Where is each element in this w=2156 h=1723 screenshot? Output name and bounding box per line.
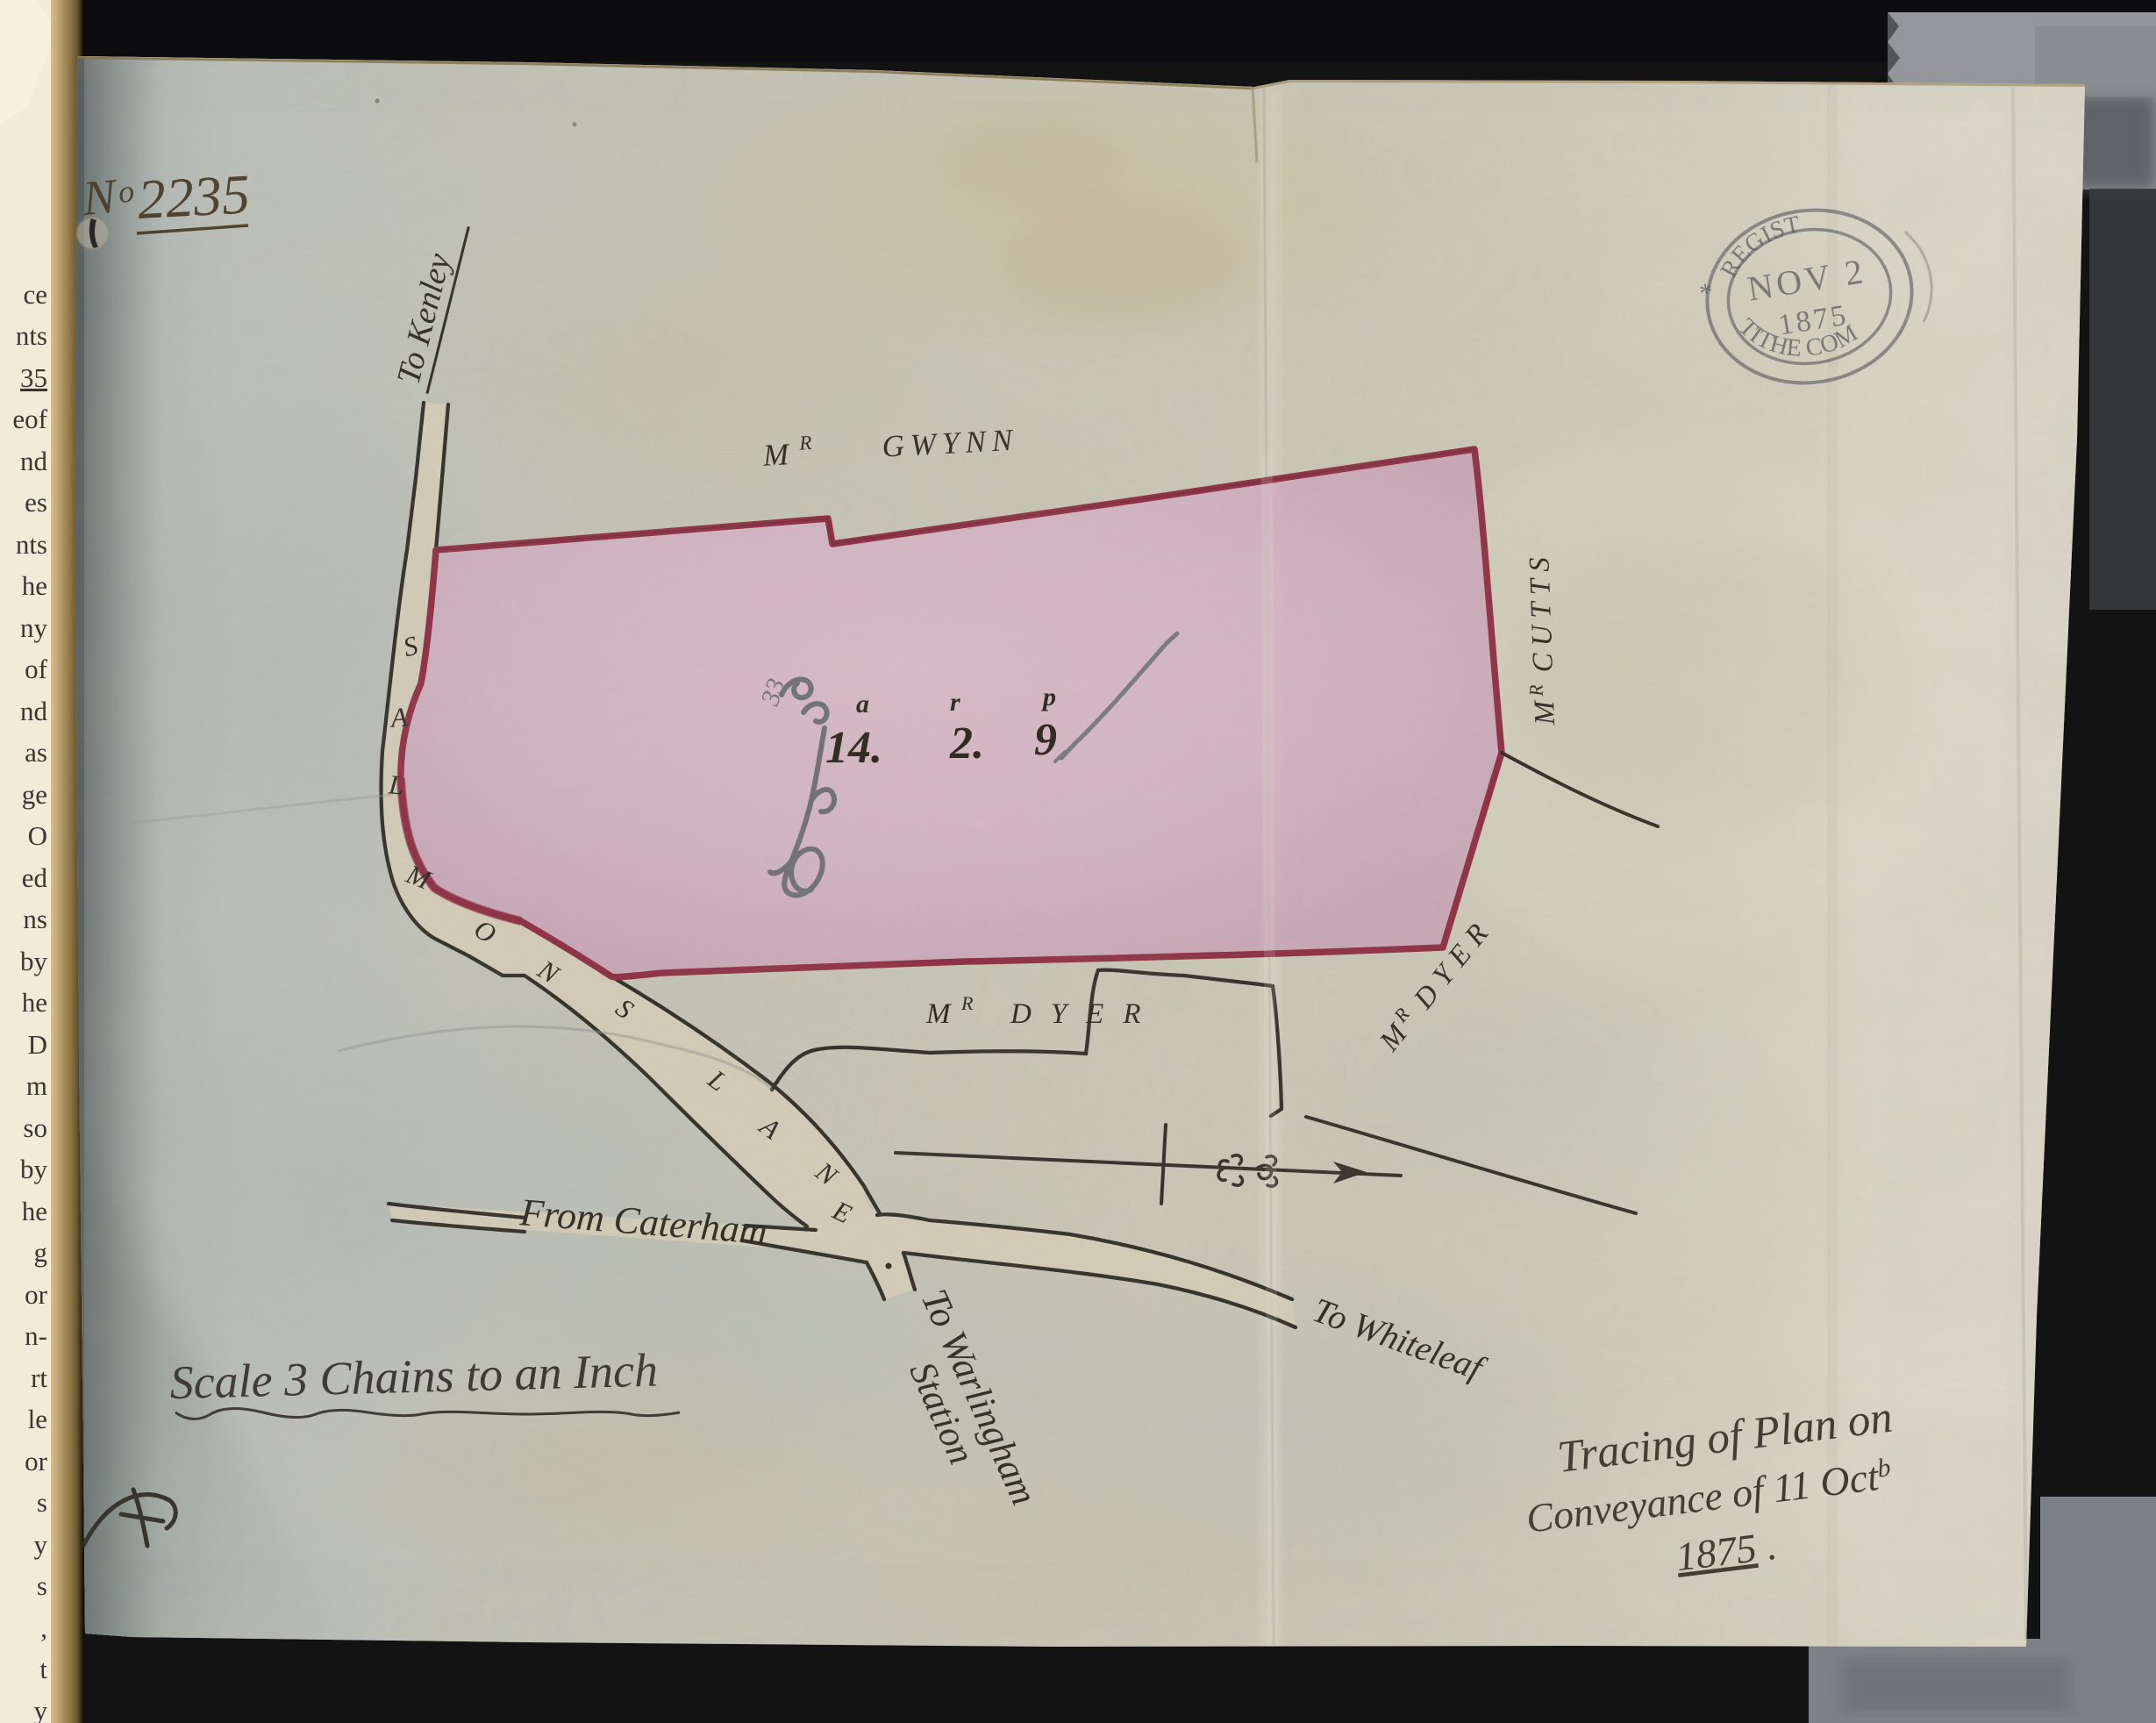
svg-text:eof: eof <box>12 404 47 434</box>
svg-text:35: 35 <box>20 362 47 393</box>
svg-text:or: or <box>25 1279 48 1310</box>
svg-text:of: of <box>25 654 48 684</box>
svg-text:es: es <box>25 487 47 518</box>
svg-text:nd: nd <box>20 446 48 476</box>
svg-text:rt: rt <box>31 1362 47 1393</box>
svg-text:y: y <box>34 1695 48 1723</box>
svg-text:so: so <box>23 1112 47 1143</box>
svg-text:n-: n- <box>25 1320 47 1351</box>
svg-text:ed: ed <box>22 862 48 893</box>
svg-text:he: he <box>22 987 47 1018</box>
svg-text:nts: nts <box>16 320 47 351</box>
svg-text:s: s <box>37 1487 47 1518</box>
svg-text:ce: ce <box>23 279 47 310</box>
svg-text:or: or <box>25 1446 48 1476</box>
svg-text:nts: nts <box>16 529 47 560</box>
svg-text:y: y <box>34 1529 48 1560</box>
svg-text:ns: ns <box>23 904 47 934</box>
svg-text:nd: nd <box>20 696 48 726</box>
svg-text:g: g <box>34 1237 48 1268</box>
svg-text:m: m <box>26 1070 47 1101</box>
svg-text:,: , <box>40 1612 47 1643</box>
svg-text:le: le <box>28 1404 47 1434</box>
svg-text:ny: ny <box>20 612 48 643</box>
svg-text:t: t <box>39 1654 47 1684</box>
svg-text:s: s <box>37 1570 47 1601</box>
svg-text:by: by <box>20 946 48 976</box>
svg-text:by: by <box>20 1154 48 1184</box>
svg-text:he: he <box>22 570 47 601</box>
svg-text:he: he <box>22 1196 47 1226</box>
svg-text:D: D <box>28 1029 47 1060</box>
svg-text:O: O <box>28 820 47 851</box>
svg-text:ge: ge <box>22 779 47 810</box>
svg-text:as: as <box>25 737 47 768</box>
